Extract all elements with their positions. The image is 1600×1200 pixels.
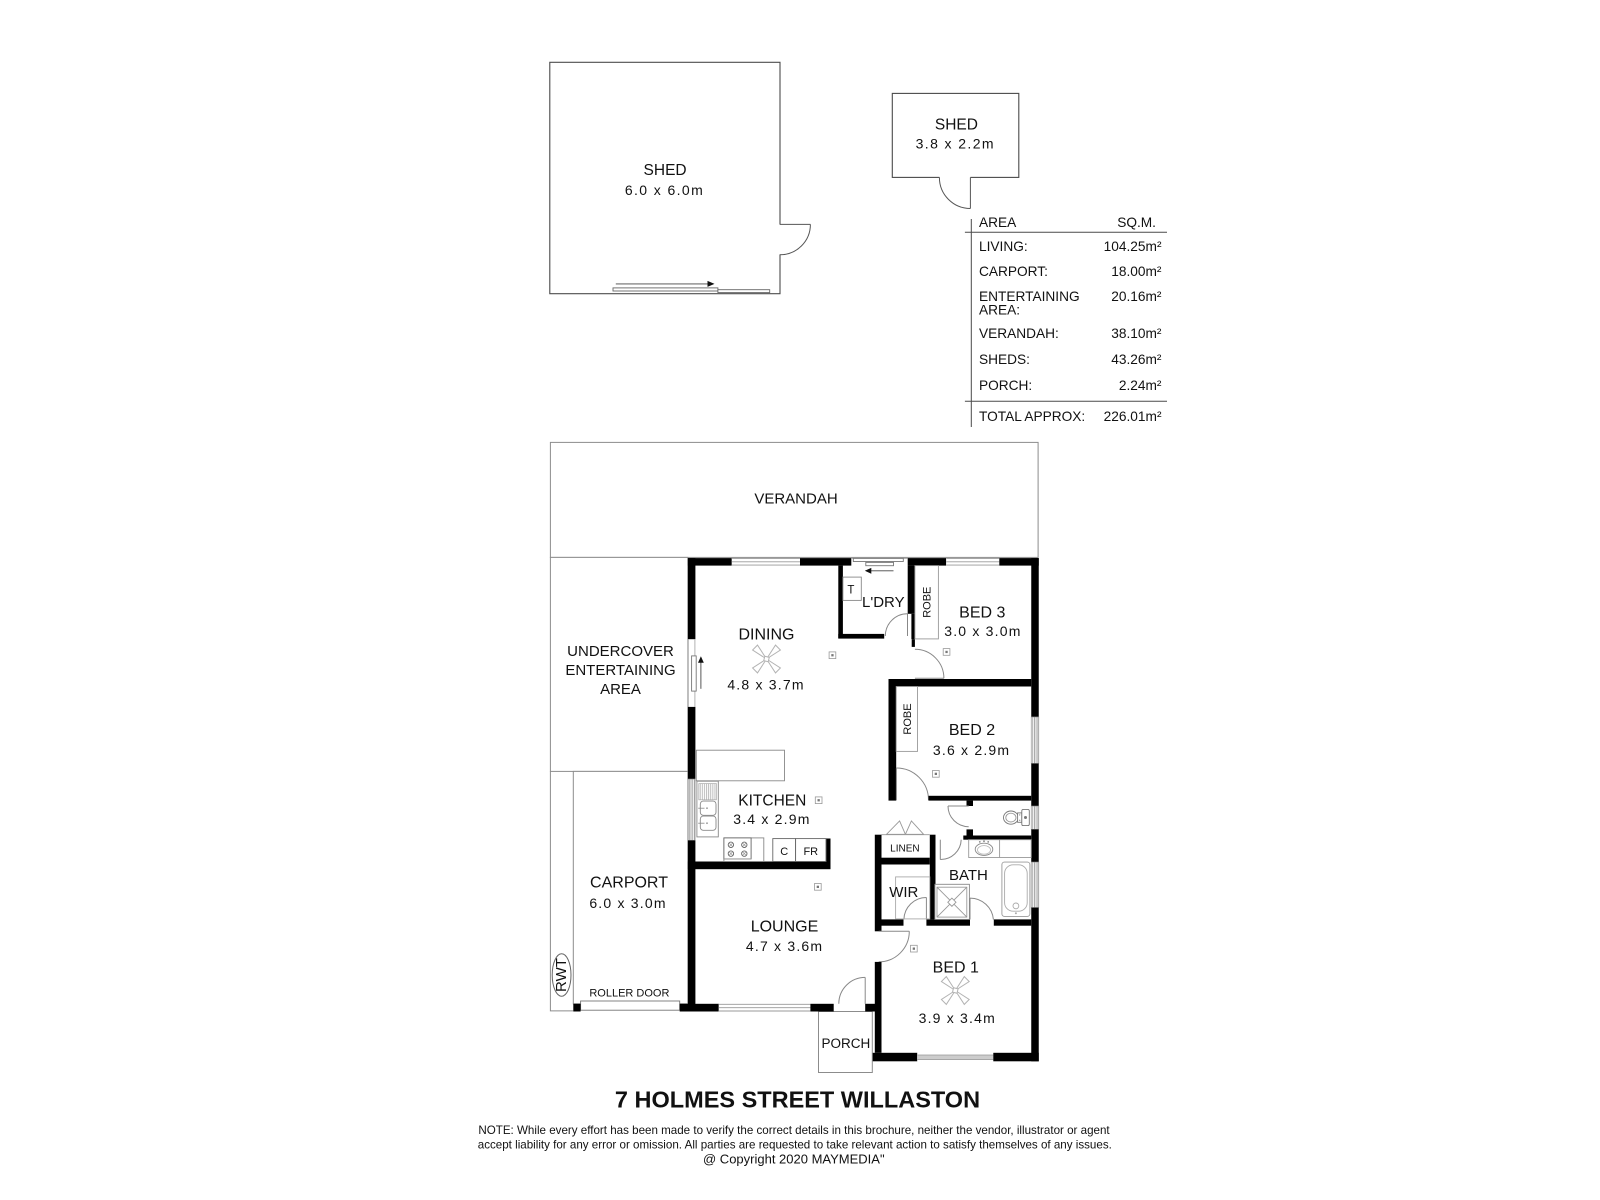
svg-text:T: T (847, 584, 854, 596)
svg-text:@ Copyright 2020 MAYMEDIA": @ Copyright 2020 MAYMEDIA" (703, 1152, 885, 1167)
svg-text:L'DRY: L'DRY (862, 594, 905, 611)
svg-text:ROBE: ROBE (902, 703, 914, 734)
svg-text:ROLLER DOOR: ROLLER DOOR (589, 988, 669, 1000)
svg-text:3.9 x 3.4m: 3.9 x 3.4m (919, 1010, 996, 1026)
svg-text:6.0 x 3.0m: 6.0 x 3.0m (589, 895, 666, 911)
svg-text:AREA: AREA (600, 681, 641, 698)
svg-text:LOUNGE: LOUNGE (751, 919, 819, 936)
svg-text:PORCH: PORCH (822, 1036, 871, 1051)
svg-text:43.26m²: 43.26m² (1111, 352, 1162, 367)
svg-text:LIVING:: LIVING: (979, 239, 1028, 254)
svg-text:38.10m²: 38.10m² (1111, 326, 1162, 341)
svg-text:RWT: RWT (553, 958, 570, 992)
svg-text:3.6 x 2.9m: 3.6 x 2.9m (933, 742, 1010, 758)
svg-text:VERANDAH:: VERANDAH: (979, 326, 1059, 341)
svg-text:3.0 x 3.0m: 3.0 x 3.0m (944, 623, 1021, 639)
svg-text:6.0 x 6.0m: 6.0 x 6.0m (625, 182, 704, 198)
svg-text:BED 3: BED 3 (959, 604, 1005, 621)
svg-text:20.16m²: 20.16m² (1111, 289, 1162, 304)
svg-text:KITCHEN: KITCHEN (738, 792, 806, 809)
svg-text:ENTERTAINING: ENTERTAINING (565, 662, 675, 679)
svg-text:BED 2: BED 2 (949, 722, 995, 739)
svg-text:WIR: WIR (889, 884, 918, 901)
svg-text:DINING: DINING (739, 627, 795, 644)
svg-text:BED 1: BED 1 (933, 960, 979, 977)
svg-text:FR: FR (803, 846, 818, 858)
svg-text:PORCH:: PORCH: (979, 378, 1032, 393)
svg-text:18.00m²: 18.00m² (1111, 264, 1162, 279)
svg-text:AREA:: AREA: (979, 303, 1020, 318)
svg-text:UNDERCOVER: UNDERCOVER (567, 643, 674, 660)
svg-text:CARPORT:: CARPORT: (979, 264, 1048, 279)
svg-text:accept liability for any error: accept liability for any error or omissi… (478, 1139, 1112, 1152)
svg-text:ROBE: ROBE (922, 587, 934, 618)
svg-text:2.24m²: 2.24m² (1119, 378, 1162, 393)
svg-text:TOTAL APPROX:: TOTAL APPROX: (979, 409, 1085, 424)
svg-text:3.4 x 2.9m: 3.4 x 2.9m (733, 811, 810, 827)
svg-text:SHED: SHED (644, 162, 687, 179)
svg-text:SQ.M.: SQ.M. (1117, 215, 1156, 230)
svg-text:226.01m²: 226.01m² (1104, 409, 1162, 424)
svg-text:CARPORT: CARPORT (590, 875, 668, 892)
svg-text:4.8 x 3.7m: 4.8 x 3.7m (727, 676, 804, 692)
svg-text:4.7 x 3.6m: 4.7 x 3.6m (746, 938, 823, 954)
svg-text:SHED: SHED (935, 117, 978, 134)
svg-text:NOTE: While every effort has b: NOTE: While every effort has been made t… (478, 1124, 1110, 1137)
svg-text:C: C (780, 846, 788, 858)
svg-text:AREA: AREA (979, 215, 1017, 230)
svg-text:7 HOLMES STREET WILLASTON: 7 HOLMES STREET WILLASTON (615, 1087, 980, 1113)
svg-text:104.25m²: 104.25m² (1104, 239, 1162, 254)
svg-text:SHEDS:: SHEDS: (979, 352, 1030, 367)
svg-text:LINEN: LINEN (890, 843, 919, 854)
svg-text:BATH: BATH (949, 867, 988, 884)
svg-text:3.8 x 2.2m: 3.8 x 2.2m (916, 135, 995, 151)
svg-text:VERANDAH: VERANDAH (754, 491, 837, 508)
